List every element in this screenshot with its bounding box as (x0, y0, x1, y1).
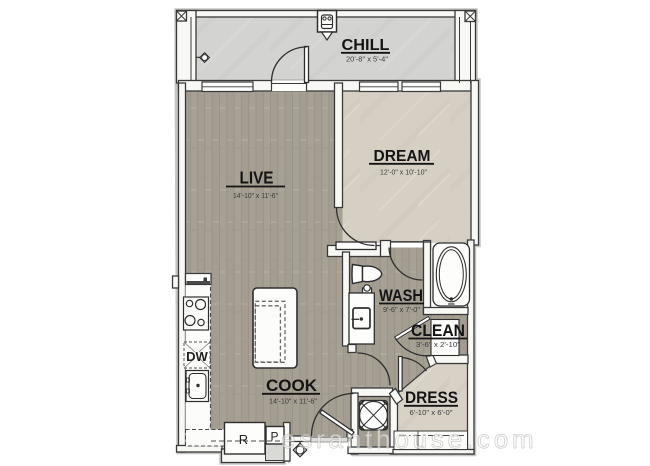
svg-text:12'-0" x 10'-10": 12'-0" x 10'-10" (380, 168, 427, 177)
svg-text:CHILL: CHILL (342, 37, 390, 54)
svg-text:CLEAN: CLEAN (411, 322, 465, 340)
svg-text:R: R (239, 432, 248, 447)
svg-text:20'-8" x 5'-4": 20'-8" x 5'-4" (346, 55, 388, 64)
svg-text:WASH: WASH (379, 287, 423, 305)
svg-text:DREAM: DREAM (374, 148, 431, 165)
svg-text:DRESS: DRESS (405, 389, 458, 407)
svg-text:14'-10" x 11'-6": 14'-10" x 11'-6" (269, 397, 317, 406)
svg-text:LIVE: LIVE (240, 168, 274, 188)
svg-text:6'-10" x 6'-0": 6'-10" x 6'-0" (410, 408, 453, 417)
svg-text:DW: DW (186, 349, 208, 364)
svg-text:esranthouse.com: esranthouse.com (281, 424, 537, 454)
svg-text:9'-6" x 7'-0": 9'-6" x 7'-0" (383, 305, 420, 314)
svg-text:COOK: COOK (266, 377, 317, 395)
svg-text:3'-6" x 2'-10": 3'-6" x 2'-10" (416, 340, 460, 349)
svg-text:14'-10" x 11'-6": 14'-10" x 11'-6" (233, 191, 278, 200)
